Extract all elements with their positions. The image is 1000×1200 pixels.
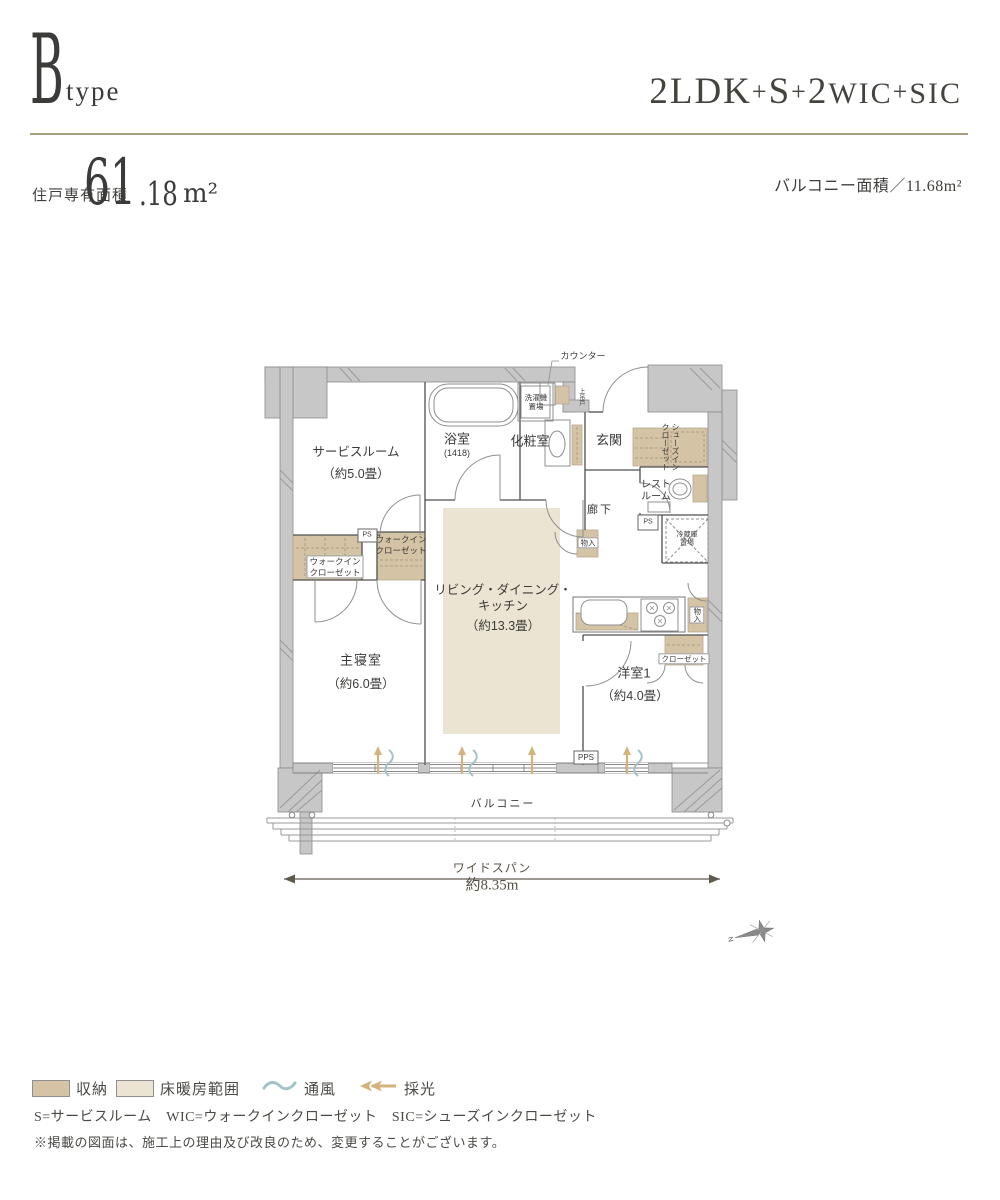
wic-door bbox=[315, 580, 357, 622]
ventilation-legend-label: 通風 bbox=[304, 1078, 336, 1099]
toilet bbox=[669, 479, 691, 499]
storage-swatch bbox=[32, 1080, 70, 1097]
legend-note: ※掲載の図面は、施工上の理由及び改良のため、変更することがございます。 bbox=[34, 1132, 505, 1151]
kitchen-sink bbox=[581, 600, 627, 625]
daylight-legend-label: 採光 bbox=[404, 1078, 436, 1099]
ldk-size: （約13.3畳） bbox=[466, 618, 540, 634]
balcony-label: バルコニー bbox=[471, 797, 536, 811]
wide-span-label: ワイドスパン bbox=[453, 861, 532, 877]
service-room-door bbox=[380, 495, 420, 535]
floor-heating-legend-label: 床暖房範囲 bbox=[160, 1078, 240, 1099]
closet-doors bbox=[647, 665, 703, 683]
western-room-size: （約4.0畳） bbox=[601, 688, 668, 704]
bath-door bbox=[455, 455, 500, 500]
wic-right-label: ウォークイン クローゼット bbox=[375, 534, 426, 555]
service-room-name: サービスルーム bbox=[312, 444, 399, 460]
ps-label-1: PS bbox=[643, 517, 652, 526]
wide-span-value: 約8.35m bbox=[466, 876, 519, 896]
powder-room-label: 化粧室 bbox=[510, 434, 549, 451]
wic-left-label: ウォークイン クローゼット bbox=[306, 555, 363, 578]
compass: N bbox=[725, 917, 776, 950]
entrance-label: 玄関 bbox=[596, 433, 622, 450]
ps-label-2: PS bbox=[362, 530, 371, 539]
legend-abbreviations: S=サービスルーム WIC=ウォークインクローゼット SIC=シューズインクロー… bbox=[34, 1106, 597, 1126]
fridge-label: 冷蔵庫 置場 bbox=[677, 532, 698, 549]
ldk-name: リビング・ダイニング・ キッチン bbox=[434, 582, 572, 615]
storage-legend-label: 収納 bbox=[76, 1078, 108, 1099]
legend: 収納 床暖房範囲 通風 採光 bbox=[32, 1078, 444, 1099]
bedroom-size: （約6.0畳） bbox=[327, 676, 394, 692]
kitchen-storage-label: 物入 bbox=[689, 607, 704, 624]
closet-label: クローゼット bbox=[659, 653, 710, 664]
counter-label: カウンター bbox=[560, 351, 605, 363]
laundry-label: 洗濯機 置場 bbox=[525, 393, 548, 411]
hallway-label: 廊下 bbox=[587, 503, 613, 517]
bedroom-door bbox=[377, 580, 421, 624]
restroom-label: レスト ルーム bbox=[641, 480, 671, 503]
daylight-icon bbox=[358, 1079, 398, 1098]
western-room-name: 洋室1 bbox=[617, 666, 650, 683]
entrance-door bbox=[603, 367, 648, 412]
bedroom-name: 主寝室 bbox=[340, 653, 382, 670]
hall-storage-label: 物入 bbox=[578, 537, 599, 548]
compass-north-label: N bbox=[728, 936, 736, 943]
bath-name: 浴室 bbox=[444, 432, 470, 449]
door-note-label: 上吊戸 bbox=[576, 388, 584, 406]
floor-heating-swatch bbox=[116, 1080, 154, 1097]
service-room-size: （約5.0畳） bbox=[322, 466, 389, 482]
balcony-railing bbox=[267, 812, 733, 841]
bathtub bbox=[429, 384, 518, 426]
ventilation-icon bbox=[262, 1078, 298, 1099]
pps-label: PPS bbox=[578, 753, 594, 763]
sic-label: シューズイン クローゼット bbox=[660, 423, 680, 471]
bath-size: (1418) bbox=[444, 448, 470, 460]
